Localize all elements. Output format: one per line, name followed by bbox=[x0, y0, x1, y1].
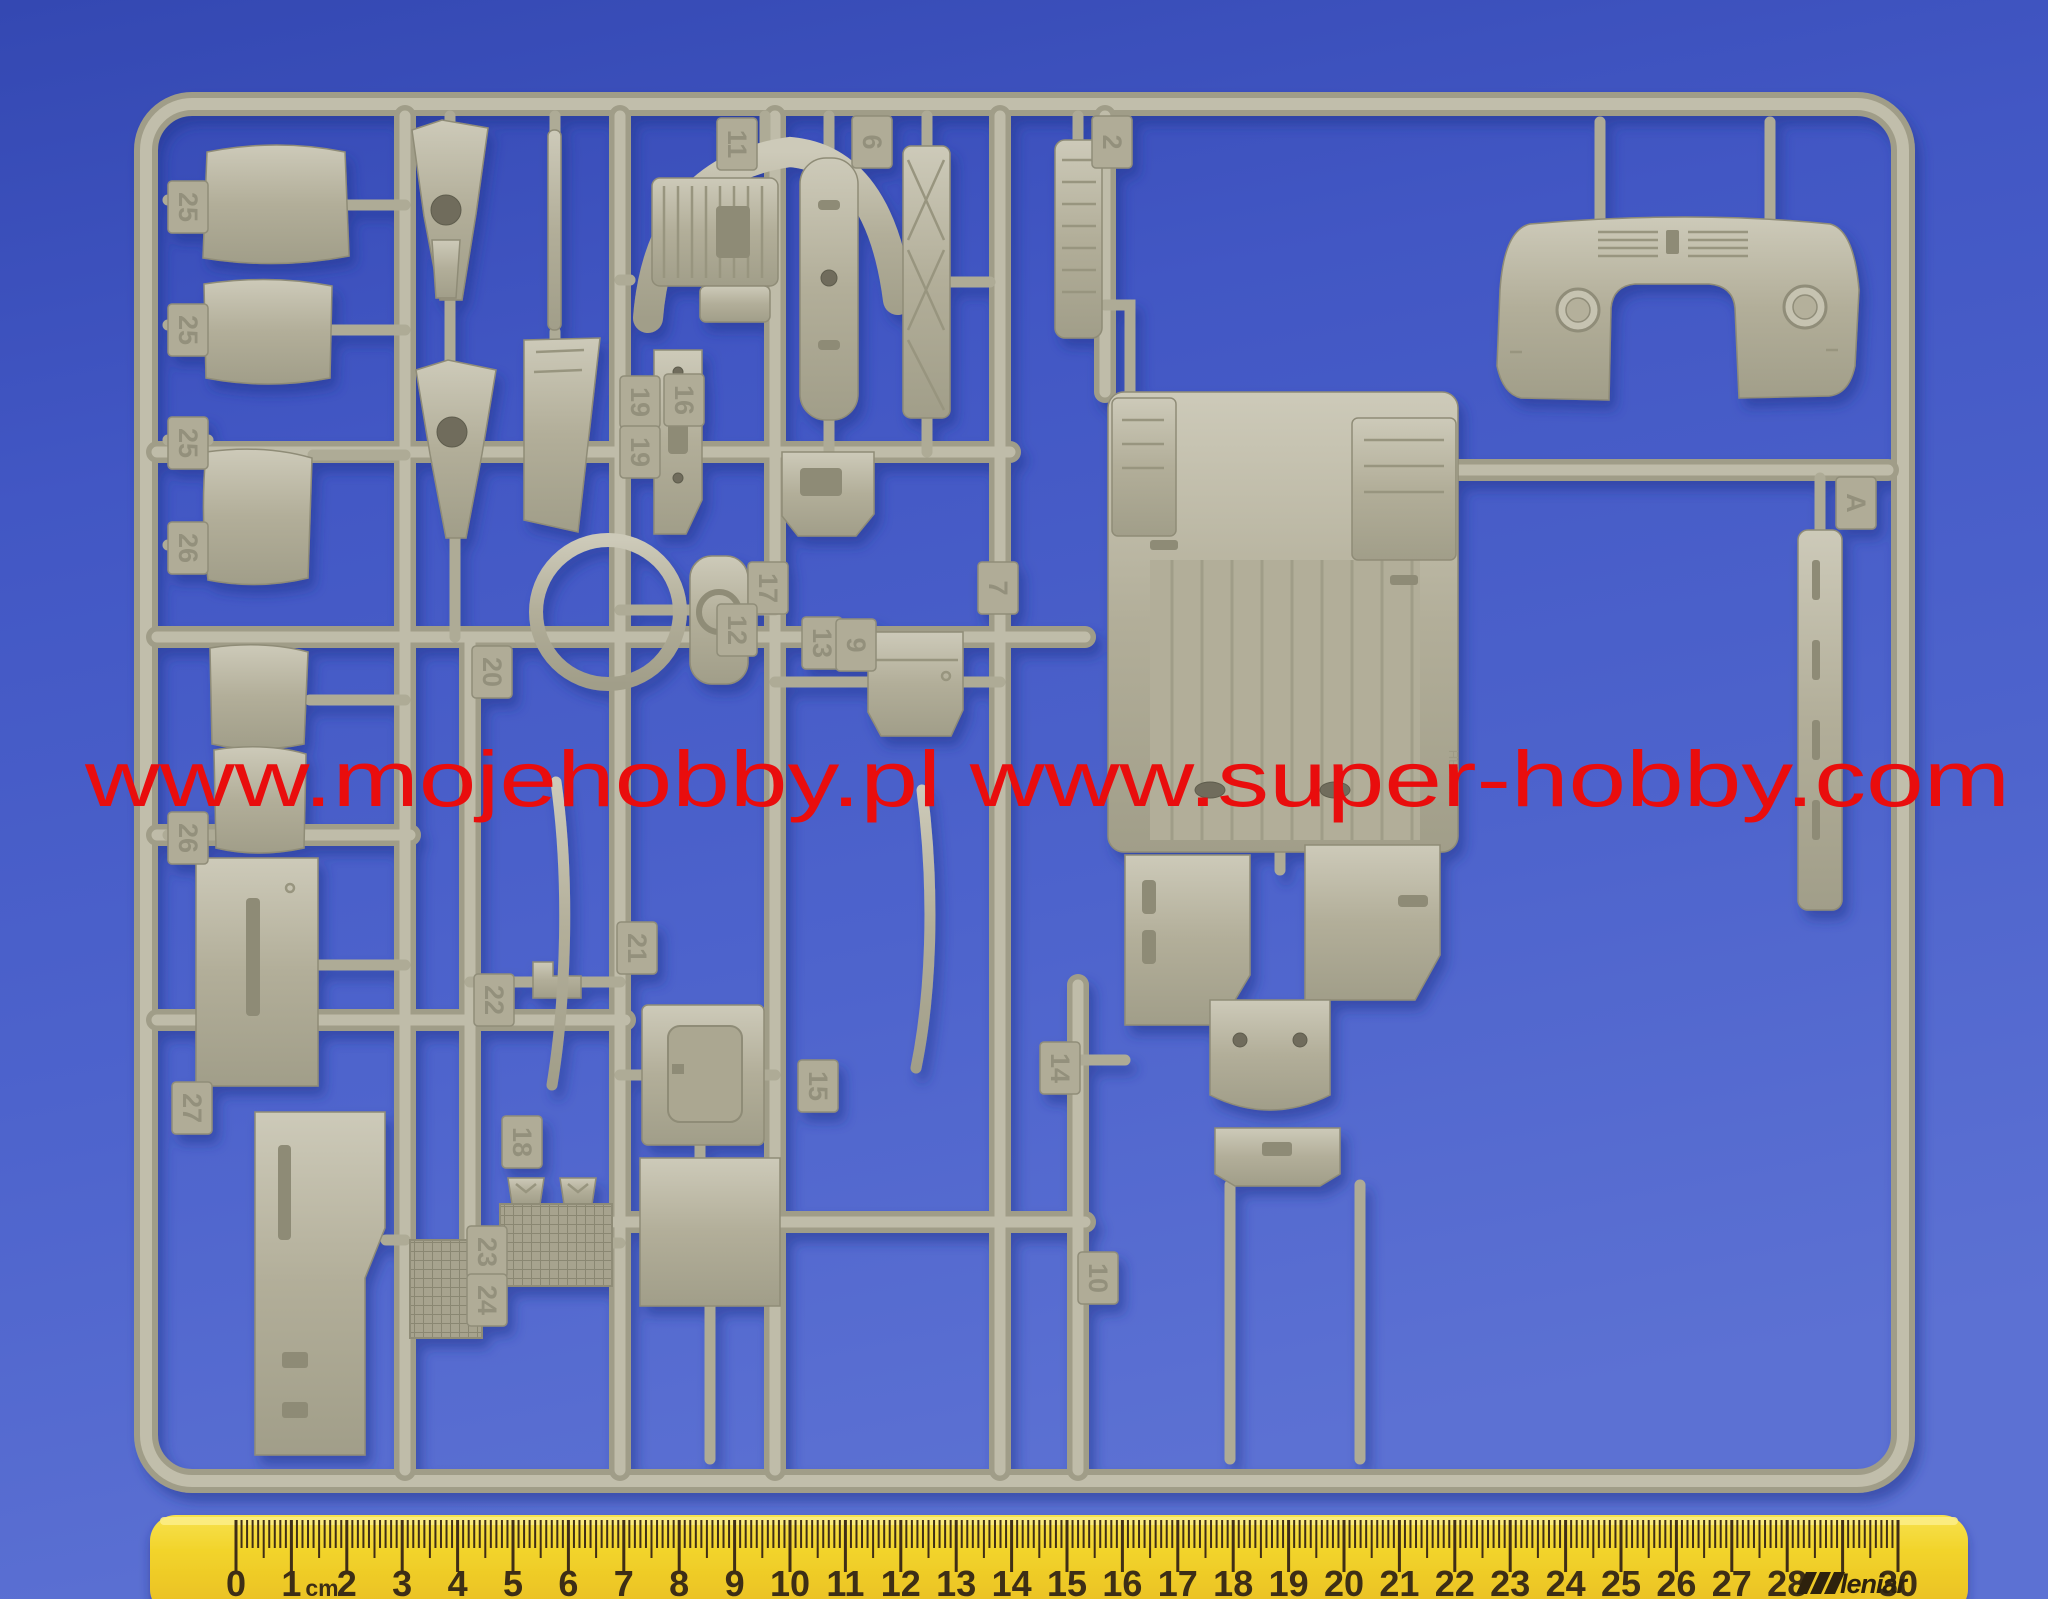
part-number-label: 24 bbox=[472, 1285, 502, 1315]
part-number-tag: 6 bbox=[852, 116, 892, 168]
part-number-label: 2 bbox=[1097, 134, 1127, 149]
ruler-number: 3 bbox=[392, 1563, 412, 1599]
ruler-number: 15 bbox=[1047, 1563, 1087, 1599]
part-number-label: 19 bbox=[625, 387, 655, 417]
part-door-panel bbox=[642, 1005, 764, 1145]
ruler-number: 20 bbox=[1324, 1563, 1364, 1599]
part-number-label: 18 bbox=[507, 1127, 537, 1157]
part-number-label: 15 bbox=[803, 1071, 833, 1101]
ruler-number: 24 bbox=[1546, 1563, 1586, 1599]
watermark-text: www.mojehobby.pl www.super-hobby.com bbox=[84, 734, 2010, 823]
part-number-label: 19 bbox=[625, 437, 655, 467]
ruler-number: 14 bbox=[992, 1563, 1032, 1599]
part-number-label: 11 bbox=[722, 130, 752, 159]
part-number-tag: 25 bbox=[168, 417, 208, 469]
part-number-tag: 24 bbox=[467, 1274, 507, 1326]
part-number-tag: 2 bbox=[1092, 116, 1132, 168]
part-seat-panel-1 bbox=[203, 145, 349, 264]
ruler-number: 8 bbox=[669, 1563, 689, 1599]
part-number-tag: 22 bbox=[474, 974, 514, 1026]
ruler-unit-label: cm bbox=[305, 1575, 338, 1599]
ruler-number: 16 bbox=[1102, 1563, 1142, 1599]
part-seat-back bbox=[203, 449, 312, 584]
part-number-label: 16 bbox=[669, 385, 699, 415]
part-number-label: 7 bbox=[983, 580, 1013, 595]
part-number-tag: 16 bbox=[664, 374, 704, 426]
ruler-number: 17 bbox=[1158, 1563, 1198, 1599]
part-cab-side-lower bbox=[255, 1112, 385, 1455]
part-number-tag: 15 bbox=[798, 1060, 838, 1112]
part-number-label: 17 bbox=[753, 573, 783, 603]
ruler-number: 22 bbox=[1435, 1563, 1475, 1599]
part-number-label: 23 bbox=[472, 1237, 502, 1267]
part-x-brace bbox=[903, 146, 950, 418]
part-seat-panel-2 bbox=[204, 279, 332, 384]
part-number-label: 13 bbox=[807, 628, 837, 658]
part-thin-rod bbox=[548, 130, 561, 330]
part-number-label: 25 bbox=[173, 192, 203, 222]
part-number-tag: 26 bbox=[168, 522, 208, 574]
brand-name: leniar bbox=[1840, 1569, 1909, 1599]
part-number-label: 9 bbox=[841, 637, 871, 652]
part-number-tag: 9 bbox=[836, 619, 876, 671]
part-number-tag: 19 bbox=[620, 426, 660, 478]
ruler-number: 27 bbox=[1712, 1563, 1752, 1599]
ruler-number: 12 bbox=[881, 1563, 921, 1599]
part-number-tag: 25 bbox=[168, 181, 208, 233]
part-louver-panel bbox=[1055, 140, 1102, 338]
part-number-tag: 7 bbox=[978, 562, 1018, 614]
ruler-number: 6 bbox=[558, 1563, 578, 1599]
ruler-number: 9 bbox=[725, 1563, 745, 1599]
part-number-label: A bbox=[1841, 493, 1871, 513]
part-number-label: 26 bbox=[173, 823, 203, 853]
part-number-label: 22 bbox=[479, 985, 509, 1015]
ruler-number: 21 bbox=[1379, 1563, 1419, 1599]
part-number-label: 10 bbox=[1083, 1263, 1113, 1293]
part-number-tag: 18 bbox=[502, 1116, 542, 1168]
ruler-number: 13 bbox=[936, 1563, 976, 1599]
part-right-strip bbox=[1798, 530, 1842, 910]
part-number-label: 14 bbox=[1045, 1053, 1075, 1083]
part-number-tag: 11 bbox=[717, 118, 757, 170]
ruler-number: 10 bbox=[770, 1563, 810, 1599]
part-number-tag: 23 bbox=[467, 1226, 507, 1278]
part-number-label: 20 bbox=[477, 657, 507, 687]
ruler-number: 0 bbox=[226, 1563, 246, 1599]
ruler-number: 11 bbox=[826, 1563, 864, 1599]
ruler-number: 25 bbox=[1601, 1563, 1641, 1599]
ruler-number: 18 bbox=[1213, 1563, 1253, 1599]
part-number-label: 25 bbox=[173, 315, 203, 345]
part-number-label: 21 bbox=[622, 933, 652, 963]
part-number-tag: 14 bbox=[1040, 1042, 1080, 1094]
part-number-tag: 10 bbox=[1078, 1252, 1118, 1304]
part-number-label: 6 bbox=[857, 134, 887, 149]
part-lidded-box bbox=[868, 632, 963, 736]
part-number-tag: 21 bbox=[617, 922, 657, 974]
part-number-tag: 12 bbox=[717, 604, 757, 656]
part-floor-strip bbox=[800, 158, 858, 420]
part-number-tag: 19 bbox=[620, 376, 660, 428]
part-small-box bbox=[782, 452, 874, 536]
part-number-tag: 27 bbox=[172, 1082, 212, 1134]
part-number-label: 27 bbox=[177, 1093, 207, 1123]
part-flat-panel bbox=[640, 1158, 780, 1306]
part-number-tag: A bbox=[1836, 477, 1876, 529]
part-number-label: 12 bbox=[722, 615, 752, 645]
ruler-number: 5 bbox=[503, 1563, 523, 1599]
part-number-label: 25 bbox=[173, 428, 203, 458]
ruler-number: 7 bbox=[614, 1563, 634, 1599]
ruler-number: 2 bbox=[337, 1563, 357, 1599]
ruler-number: 19 bbox=[1269, 1563, 1309, 1599]
ruler: 01cm234567891011121314151617181920212223… bbox=[150, 1515, 1968, 1599]
photo-stage: HELLER bbox=[0, 0, 2048, 1599]
part-number-tag: 25 bbox=[168, 304, 208, 356]
ruler-number: 1 bbox=[281, 1563, 301, 1599]
ruler-number: 23 bbox=[1490, 1563, 1530, 1599]
part-number-tag: 20 bbox=[472, 646, 512, 698]
ruler-number: 26 bbox=[1656, 1563, 1696, 1599]
part-number-label: 26 bbox=[173, 533, 203, 563]
part-cab-side-upper bbox=[196, 858, 318, 1086]
ruler-number: 4 bbox=[448, 1563, 468, 1599]
